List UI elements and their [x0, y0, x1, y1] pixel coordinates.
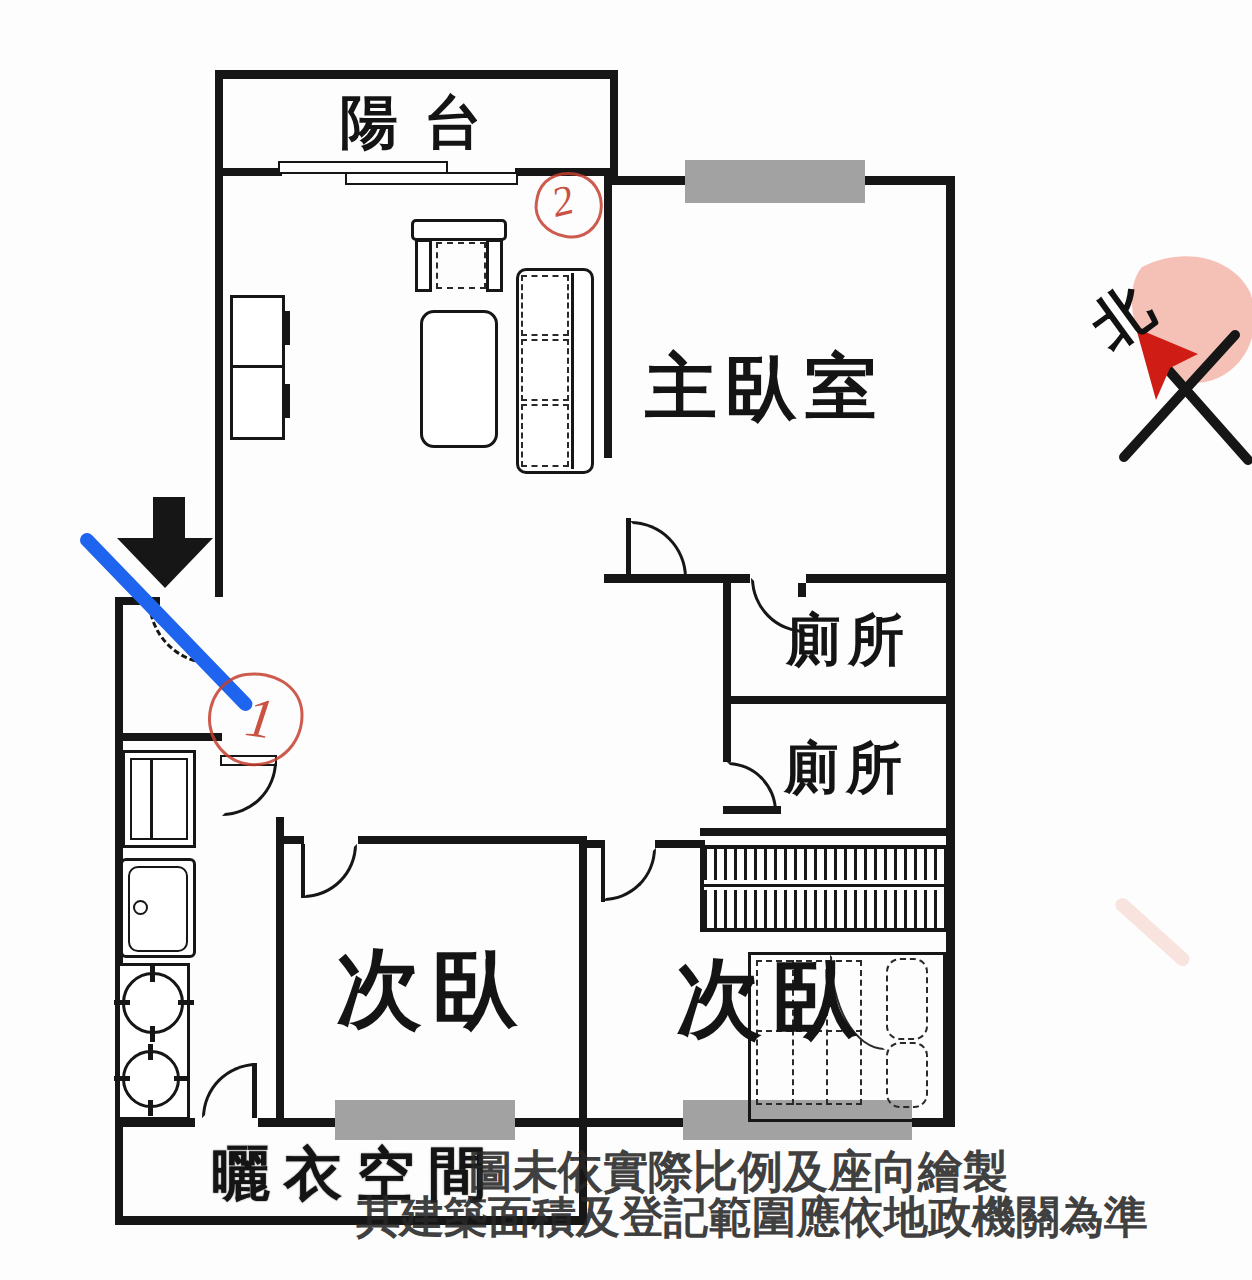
window-master: [685, 160, 865, 203]
wall-toilet-upper-left: [723, 583, 731, 704]
kitchen-cabinet-line: [150, 760, 153, 838]
wall-toilet-lower-stub: [723, 806, 781, 814]
burner2-tick-e: [174, 1076, 190, 1081]
toilet-lower-door-arc: [727, 762, 777, 812]
master-door-arc: [630, 521, 687, 578]
wall-right-outer: [946, 176, 955, 1127]
wall-master-left: [604, 176, 612, 458]
burner1-tick-w: [114, 1000, 130, 1005]
floor-plan-canvas: 陽台 主臥室 廁所 廁所 次臥 次臥 曬衣空間 圖未依實際比例及座向繪製 其建築…: [0, 0, 1252, 1280]
wall-balcony-top: [215, 70, 618, 79]
wall-kitchen-top: [115, 733, 222, 741]
wall-bedroom-left-top-b: [358, 836, 583, 844]
entry-arrow-stem: [153, 497, 185, 541]
wall-toilet-lower-left: [723, 704, 731, 762]
tv-cabinet-divider: [232, 365, 283, 368]
sliding-window-panel-2: [345, 172, 518, 185]
disclaimer-line-2: 其建築面積及登記範圍應依地政機關為準: [356, 1196, 1148, 1240]
sofa-cushion-1: [521, 275, 569, 336]
burner2-tick-w: [114, 1076, 130, 1081]
room-label-bedroom-right: 次臥: [676, 956, 868, 1042]
wall-balcony-right: [610, 70, 618, 180]
bedroom-left-door-arc: [303, 844, 357, 898]
kitchen-door-arc: [222, 761, 277, 816]
armchair-backrest: [411, 219, 507, 241]
burner2-tick-n: [148, 1044, 153, 1060]
burner1-tick-e: [178, 1000, 194, 1005]
bed-pillow-1: [886, 958, 928, 1040]
sofa-back-line: [571, 273, 574, 469]
bedroom-right-door-arc: [603, 848, 656, 901]
pink-streak: [1113, 895, 1193, 969]
burner2-tick-s: [148, 1100, 153, 1116]
room-label-toilet-upper: 廁所: [786, 612, 910, 668]
wall-toilet-divider: [723, 696, 955, 704]
bed-pillow-2: [886, 1042, 928, 1108]
disclaimer-line-1: 圖未依實際比例及座向繪製: [468, 1150, 1008, 1195]
coffee-table: [420, 310, 498, 448]
wall-master-bottom-left: [604, 574, 750, 583]
burner1-tick-s: [150, 1026, 155, 1042]
tv-cabinet-knob-2: [283, 384, 290, 418]
armchair-arm-left: [415, 239, 432, 292]
sofa-cushion-3: [521, 404, 569, 467]
kitchen-cabinet-inner: [130, 758, 188, 840]
room-label-master-bedroom: 主臥室: [645, 352, 885, 424]
laundry-door-arc: [202, 1063, 257, 1118]
armchair-seat: [436, 242, 486, 289]
room-label-balcony: 陽台: [340, 94, 508, 152]
window-bedroom-left: [335, 1100, 515, 1140]
north-compass-graphic: 北: [1052, 252, 1252, 467]
wall-left-upper: [215, 70, 223, 597]
wall-bedroom-left-west: [276, 817, 284, 1127]
wall-bedroom-right-top-a: [583, 840, 605, 848]
burner1-tick-n: [150, 966, 155, 982]
wall-bedroom-left-top-a: [276, 836, 304, 844]
wall-balcony-divider-left: [222, 168, 282, 176]
sofa-cushion-2: [521, 339, 569, 401]
room-label-toilet-lower: 廁所: [784, 740, 908, 796]
wardrobe-mid-line: [704, 884, 944, 887]
kitchen-sink-drain: [133, 900, 148, 915]
room-label-bedroom-left: 次臥: [336, 946, 528, 1032]
wall-master-bottom-right: [806, 574, 955, 583]
wall-bedroom-right-top-b: [655, 840, 705, 848]
armchair-arm-right: [486, 239, 503, 292]
wall-toilet-lower-bottom: [700, 828, 955, 836]
tv-cabinet-knob-1: [283, 311, 290, 345]
north-compass: 北: [1052, 252, 1252, 467]
